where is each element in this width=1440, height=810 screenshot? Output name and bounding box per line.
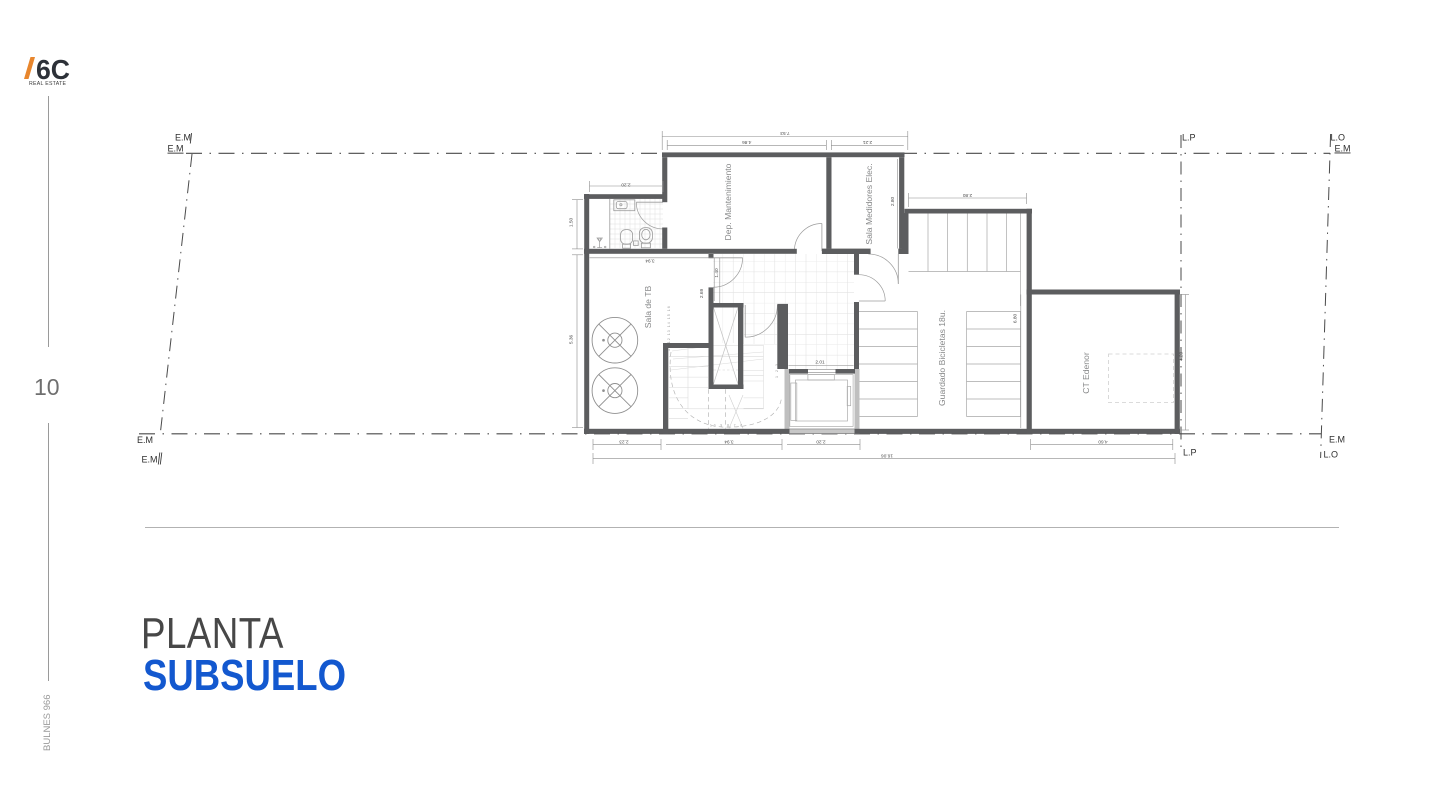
svg-text:3.94: 3.94 [724,439,734,445]
svg-text:E.M: E.M [168,144,184,154]
svg-text:Guardado Bicicletas 18u.: Guardado Bicicletas 18u. [937,310,947,406]
svg-text:16.06: 16.06 [881,453,893,459]
svg-text:CT Edenor: CT Edenor [1081,352,1091,394]
svg-text:L.O: L.O [1331,133,1346,143]
svg-text:2.20: 2.20 [621,182,631,188]
svg-text:Dep. Mantenimiento: Dep. Mantenimiento [723,163,733,240]
svg-text:6.80: 6.80 [1013,314,1019,324]
svg-text:2.69: 2.69 [699,289,705,299]
svg-text:E.M: E.M [175,133,191,143]
svg-text:4.60: 4.60 [1098,439,1108,445]
svg-text:1.50: 1.50 [569,218,575,228]
svg-text:2.80: 2.80 [963,192,973,198]
svg-text:2.01: 2.01 [815,360,825,366]
svg-text:Sala de TB: Sala de TB [643,286,653,329]
svg-text:E.M: E.M [1329,435,1345,445]
svg-text:5.36: 5.36 [569,335,575,345]
svg-text:7.53: 7.53 [780,130,790,136]
svg-text:E.M: E.M [137,435,153,445]
svg-text:E.M: E.M [1335,144,1351,154]
svg-text:L.O: L.O [1324,450,1339,460]
svg-text:1.40: 1.40 [714,268,720,278]
svg-text:Sala Medidores Elec.: Sala Medidores Elec. [864,163,874,244]
svg-text:4.20: 4.20 [1179,352,1185,362]
svg-text:E.M: E.M [142,455,158,465]
svg-text:4.86: 4.86 [742,139,752,145]
svg-text:2.80: 2.80 [890,197,896,207]
svg-text:2.20: 2.20 [816,439,826,445]
svg-text:3.94: 3.94 [645,258,655,264]
svg-text:2.23: 2.23 [619,439,629,445]
svg-text:L.P: L.P [1182,133,1196,143]
svg-text:2.21: 2.21 [863,139,873,145]
svg-text:L.P: L.P [1183,448,1197,458]
svg-text:10 9 8 7 6: 10 9 8 7 6 [710,424,744,428]
